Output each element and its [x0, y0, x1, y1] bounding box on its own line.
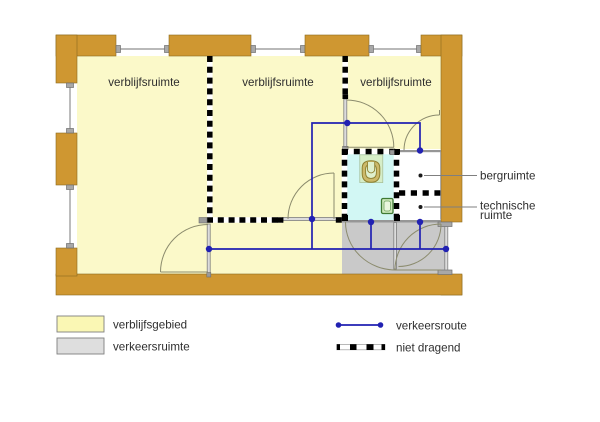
svg-text:verblijfsruimte: verblijfsruimte — [108, 76, 180, 89]
svg-text:verblijfsruimte: verblijfsruimte — [242, 76, 314, 89]
svg-text:niet dragend: niet dragend — [396, 342, 460, 355]
svg-text:verkeersroute: verkeersroute — [396, 320, 467, 333]
svg-text:bergruimte: bergruimte — [480, 170, 535, 183]
svg-text:verblijfsgebied: verblijfsgebied — [113, 319, 187, 332]
svg-text:verblijfsruimte: verblijfsruimte — [360, 76, 432, 89]
svg-text:verkeersruimte: verkeersruimte — [113, 341, 190, 354]
svg-text:ruimte: ruimte — [480, 209, 512, 222]
